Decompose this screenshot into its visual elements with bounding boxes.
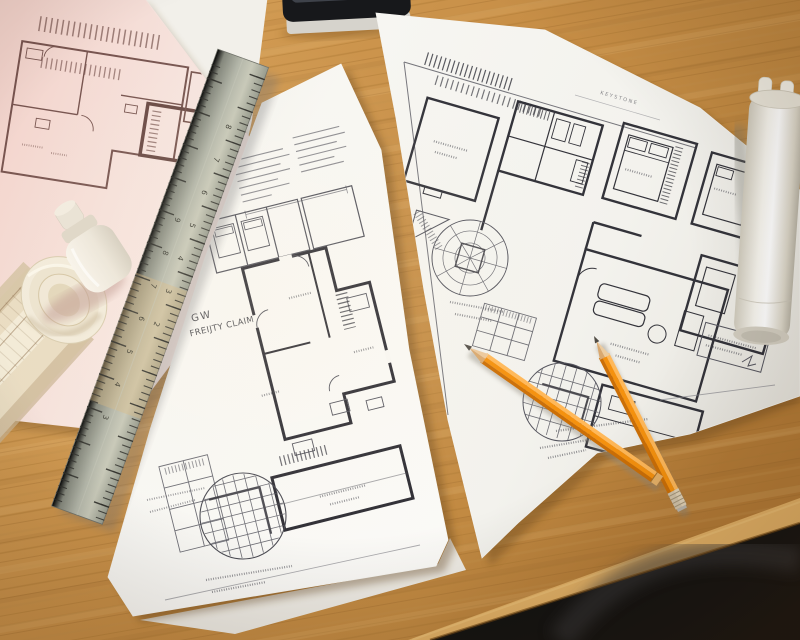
vignette xyxy=(0,0,800,640)
desk-photo: GW FREIJTY CLAIM xyxy=(0,0,800,640)
blueprints-scene: GW FREIJTY CLAIM xyxy=(0,0,800,640)
